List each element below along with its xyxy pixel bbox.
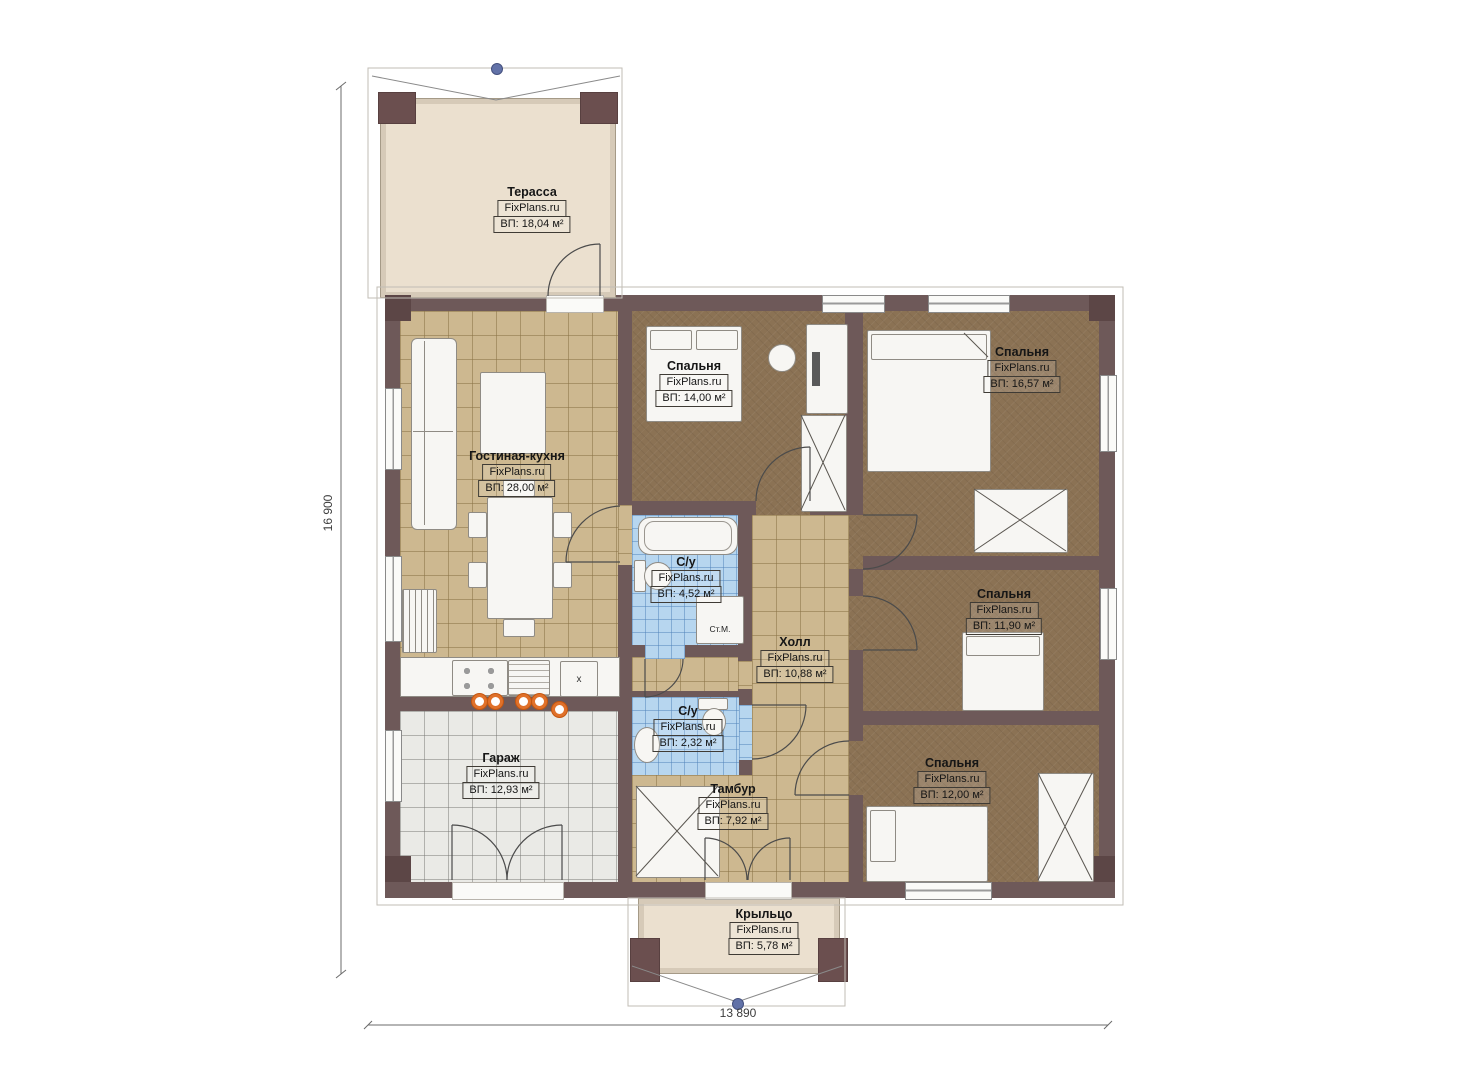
- porch-column-right: [818, 938, 848, 982]
- burner-indicator: [532, 694, 547, 709]
- room-area: ВП: 4,52 м²: [650, 586, 721, 603]
- room-area: ВП: 5,78 м²: [728, 938, 799, 955]
- pillow: [870, 810, 896, 862]
- door-opening-strip-hall: [738, 661, 752, 689]
- chair: [553, 512, 572, 538]
- burner-indicator: [472, 694, 487, 709]
- terrace-column-right: [580, 92, 618, 124]
- pillow: [966, 636, 1040, 656]
- room-label-tambour: Тамбур FixPlans.ru ВП: 7,92 м²: [697, 781, 768, 830]
- room-watermark: FixPlans.ru: [466, 766, 535, 783]
- fridge: [402, 589, 437, 653]
- room-area: ВП: 12,93 м²: [462, 782, 539, 799]
- pillow: [650, 330, 692, 350]
- burner-indicator: [516, 694, 531, 709]
- door-opening-living-hall: [618, 505, 632, 565]
- sofa-seat-line: [413, 431, 453, 432]
- room-label-bedroom-1657: Спальня FixPlans.ru ВП: 16,57 м²: [983, 344, 1060, 393]
- wardrobe: [1038, 773, 1094, 882]
- room-name: Спальня: [977, 586, 1031, 602]
- room-area: ВП: 7,92 м²: [697, 813, 768, 830]
- room-name: С/у: [676, 554, 695, 570]
- room-name: Холл: [779, 634, 810, 650]
- room-label-bedroom-1190: Спальня FixPlans.ru ВП: 11,90 м²: [966, 586, 1042, 635]
- door-opening-bedroom-1657: [849, 515, 863, 569]
- stove: [452, 660, 508, 696]
- room-name: Спальня: [667, 358, 721, 374]
- window-right-bedroom-1190: [1100, 588, 1117, 660]
- wardrobe: [974, 489, 1068, 553]
- room-watermark: FixPlans.ru: [760, 650, 829, 667]
- room-label-living-kitchen: Гостиная-кухня FixPlans.ru ВП: 28,00 м²: [469, 448, 565, 497]
- window-top-2: [928, 295, 1010, 313]
- sofa: [411, 338, 457, 530]
- door-opening-bedroom-1190: [849, 596, 863, 650]
- porch-column-left: [630, 938, 660, 982]
- room-area: ВП: 14,00 м²: [655, 390, 732, 407]
- room-watermark: FixPlans.ru: [969, 602, 1038, 619]
- room-label-bedroom-14: Спальня FixPlans.ru ВП: 14,00 м²: [655, 358, 732, 407]
- terrace-column-left: [378, 92, 416, 124]
- room-label-bedroom-1200: Спальня FixPlans.ru ВП: 12,00 м²: [913, 755, 990, 804]
- room-label-porch: Крыльцо FixPlans.ru ВП: 5,78 м²: [728, 906, 799, 955]
- room-name: Гараж: [482, 750, 519, 766]
- pillow: [871, 334, 987, 360]
- window-top-1: [822, 295, 885, 313]
- burner-indicator: [488, 694, 503, 709]
- room-label-bathroom-232: С/у FixPlans.ru ВП: 2,32 м²: [652, 703, 723, 752]
- door-opening-bathroom-452: [645, 645, 685, 659]
- room-watermark: FixPlans.ru: [659, 374, 728, 391]
- room-watermark: FixPlans.ru: [729, 922, 798, 939]
- room-area: ВП: 28,00 м²: [478, 480, 555, 497]
- room-name: Спальня: [925, 755, 979, 771]
- window-right-bedroom-1657: [1100, 375, 1117, 452]
- monitor: [812, 352, 820, 386]
- room-area: ВП: 18,04 м²: [493, 216, 570, 233]
- room-name: Крыльцо: [736, 906, 793, 922]
- washing-machine: [696, 596, 744, 644]
- room-name: С/у: [678, 703, 697, 719]
- room-area: ВП: 12,00 м²: [913, 787, 990, 804]
- pillow: [696, 330, 738, 350]
- room-label-bathroom-452: С/у FixPlans.ru ВП: 4,52 м²: [650, 554, 721, 603]
- dimension-height: 16 900: [321, 478, 335, 548]
- room-watermark: FixPlans.ru: [653, 719, 722, 736]
- room-name: Спальня: [995, 344, 1049, 360]
- kitchen-sink: x: [560, 661, 598, 697]
- room-watermark: FixPlans.ru: [497, 200, 566, 217]
- wardrobe: [801, 415, 847, 512]
- room-area: ВП: 16,57 м²: [983, 376, 1060, 393]
- bathtub-basin: [644, 521, 732, 551]
- door-opening-bathroom-232: [739, 705, 752, 760]
- wall-pilaster: [1089, 295, 1115, 321]
- chair: [503, 619, 535, 637]
- room-name: Гостиная-кухня: [469, 448, 565, 464]
- garage-door-opening: [452, 882, 564, 900]
- oven: [508, 660, 550, 696]
- room-watermark: FixPlans.ru: [482, 464, 551, 481]
- washing-machine-label: Ст.М.: [698, 624, 742, 634]
- burner-indicator: [552, 702, 567, 717]
- window-left-living-1: [385, 388, 402, 470]
- window-bottom-bedroom-1200: [905, 882, 992, 900]
- terrace-door-opening: [546, 295, 604, 313]
- chair: [553, 562, 572, 588]
- chair: [468, 562, 487, 588]
- sofa-back-line: [424, 341, 425, 525]
- room-name: Терасса: [507, 184, 557, 200]
- chair: [468, 512, 487, 538]
- floor-plan-canvas: x Ст.М.: [0, 0, 1474, 1080]
- coffee-table: [480, 372, 546, 454]
- room-watermark: FixPlans.ru: [987, 360, 1056, 377]
- room-name: Тамбур: [710, 781, 755, 797]
- sink-marker: x: [577, 674, 582, 685]
- desk-chair: [768, 344, 796, 372]
- wall-pilaster: [385, 295, 411, 321]
- room-floor-lobby-strip: [632, 657, 738, 691]
- room-watermark: FixPlans.ru: [698, 797, 767, 814]
- room-watermark: FixPlans.ru: [917, 771, 986, 788]
- entrance-door-opening: [705, 882, 792, 900]
- room-label-terrace: Терасса FixPlans.ru ВП: 18,04 м²: [493, 184, 570, 233]
- dining-table: [487, 497, 553, 619]
- room-label-hall: Холл FixPlans.ru ВП: 10,88 м²: [756, 634, 833, 683]
- room-label-garage: Гараж FixPlans.ru ВП: 12,93 м²: [462, 750, 539, 799]
- dimension-width: 13 890: [698, 1006, 778, 1020]
- canopy-grip-dot: [491, 63, 503, 75]
- window-left-garage: [385, 730, 402, 802]
- door-opening-bedroom-1200: [849, 741, 863, 795]
- room-area: ВП: 2,32 м²: [652, 735, 723, 752]
- window-left-living-2: [385, 556, 402, 642]
- wall-pilaster: [385, 856, 411, 882]
- room-area: ВП: 11,90 м²: [966, 618, 1042, 635]
- room-area: ВП: 10,88 м²: [756, 666, 833, 683]
- room-watermark: FixPlans.ru: [651, 570, 720, 587]
